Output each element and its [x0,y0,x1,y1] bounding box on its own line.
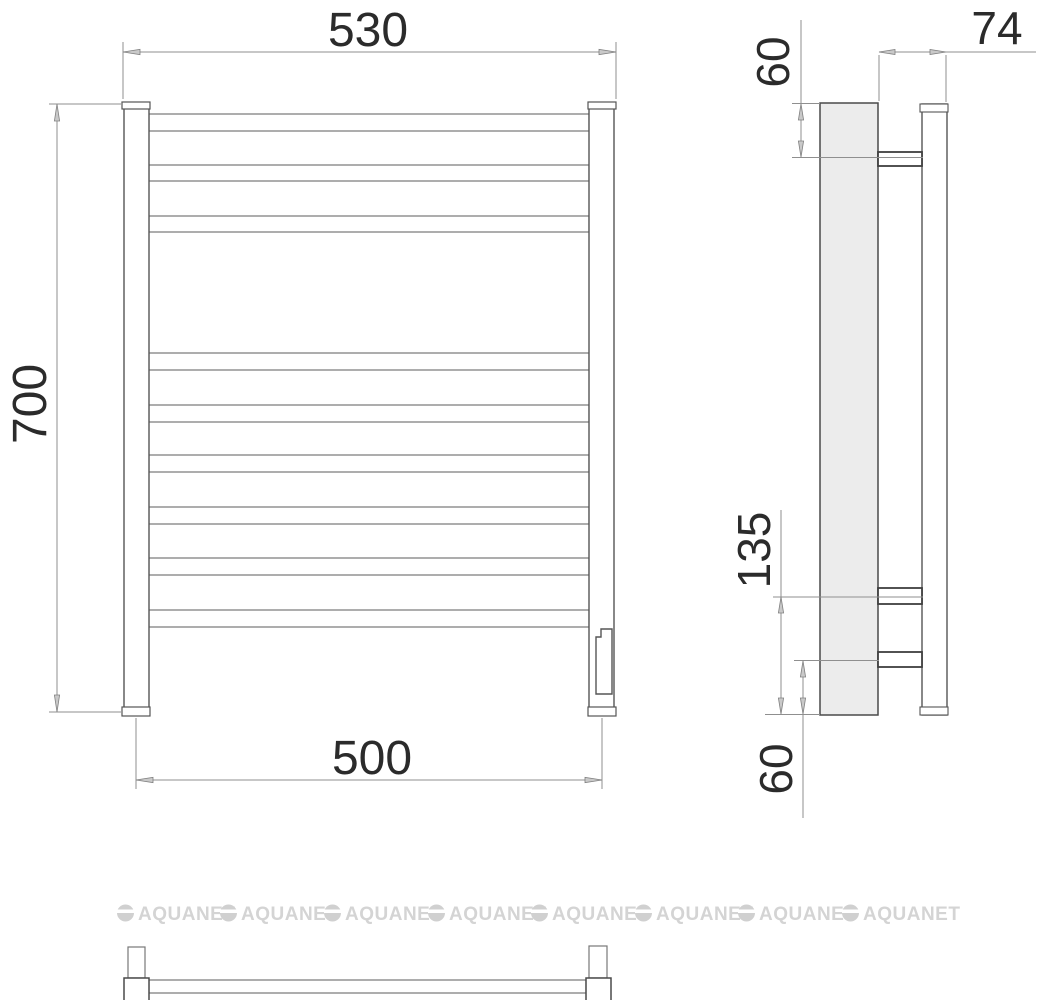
watermark-text: AQUANET [759,904,856,925]
side-view: 74 60 135 60 [728,2,1036,818]
right-post-top-cap [588,102,616,109]
globe-stripe [635,910,652,914]
drawing-canvas: 530 700 500 [0,0,1037,1000]
right-post-foot [588,707,616,716]
watermark-text: AQUANET [345,904,442,925]
post-side-profile [820,103,878,715]
rung [149,114,589,131]
globe-stripe [220,910,237,914]
towel-rail-technical-drawing: 530 700 500 [0,0,1037,1000]
arrowhead-down [778,698,783,714]
rung [149,405,589,422]
wall-rail-bottom-cap [920,707,948,715]
arrowhead-up [800,661,805,677]
watermark-text: AQUANET [863,904,960,925]
arrowhead-up [54,104,59,121]
arrowhead-left [136,777,153,782]
rung [149,507,589,524]
watermark: AQUANET [842,904,960,925]
globe-stripe [738,910,755,914]
globe-stripe [428,910,445,914]
arrowhead-right [599,49,616,54]
left-stem [128,947,145,978]
arrowhead-left [879,50,895,55]
dimension-label-60-top: 60 [747,36,799,87]
wall-rail [920,104,948,715]
arrowhead-right [930,50,946,55]
front-view: 530 700 500 [4,4,616,789]
watermark: AQUANET [428,904,546,925]
left-post-foot [122,707,150,716]
dimension-700: 700 [4,104,121,712]
watermark: AQUANET [531,904,649,925]
left-post-body [124,107,149,708]
rung [149,216,589,232]
wall-brackets [878,152,922,667]
bracket-top [878,152,922,166]
left-post [122,102,150,716]
rungs [149,114,589,627]
watermark: AQUANET [738,904,856,925]
globe-stripe [324,910,341,914]
bracket-middle [878,588,922,604]
dimension-74: 74 [879,2,1036,102]
dimension-label-700: 700 [4,364,57,444]
right-block [586,978,611,1000]
dimension-500: 500 [136,718,602,789]
left-post-top-cap [122,102,150,109]
rung [149,610,589,627]
right-post [588,102,616,716]
arrowhead-up [778,597,783,613]
rung [149,353,589,370]
left-block [124,978,149,1000]
arrowhead-down [54,695,59,712]
power-switch [596,629,612,694]
cross-bar [149,980,586,993]
watermark: AQUANET [220,904,338,925]
rung [149,558,589,575]
arrowhead-down [800,698,805,714]
watermark: AQUANET [117,904,235,925]
dimension-label-530: 530 [328,4,408,57]
wall-rail-top-cap [920,104,948,112]
dimension-label-60-bottom: 60 [750,743,802,794]
globe-stripe [531,910,548,914]
globe-stripe [117,910,134,914]
watermark-text: AQUANET [241,904,338,925]
dimension-label-500: 500 [332,732,412,785]
watermark: AQUANET [635,904,753,925]
arrowhead-down [798,141,803,157]
dimension-530: 530 [123,4,616,99]
rung [149,455,589,472]
right-stem [589,946,607,978]
right-post-body [589,107,614,708]
watermark: AQUANET [324,904,442,925]
arrowhead-up [798,104,803,120]
arrowhead-left [123,49,140,54]
plan-view [124,946,611,1000]
watermark-text: AQUANET [552,904,649,925]
globe-stripe [842,910,859,914]
rung [149,165,589,181]
wall-rail-body [922,104,947,715]
dimension-label-135: 135 [728,512,780,589]
watermark-row: AQUANET AQUANET AQUANET AQUANET AQUANET … [117,904,960,925]
arrowhead-right [585,777,602,782]
bracket-bottom [878,652,922,667]
dimension-label-74: 74 [971,2,1022,54]
